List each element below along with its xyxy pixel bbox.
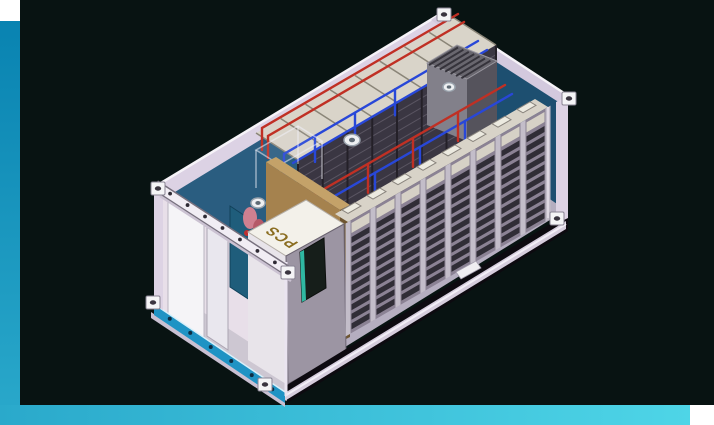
right-corner-post [556,96,568,224]
hvac-unit [427,45,497,141]
bottom-accent-bar [0,405,690,425]
left-corner-post [154,190,163,310]
pcs-cabinet: PCS [248,200,346,384]
bess-container-render: PCS [0,0,714,425]
bottom-right-corner-square [690,405,714,425]
white-cabinet-door-2 [207,223,228,350]
left-accent-bar [0,21,20,425]
screenshot-stage: PCS [0,0,714,425]
top-left-corner-square [0,0,20,21]
